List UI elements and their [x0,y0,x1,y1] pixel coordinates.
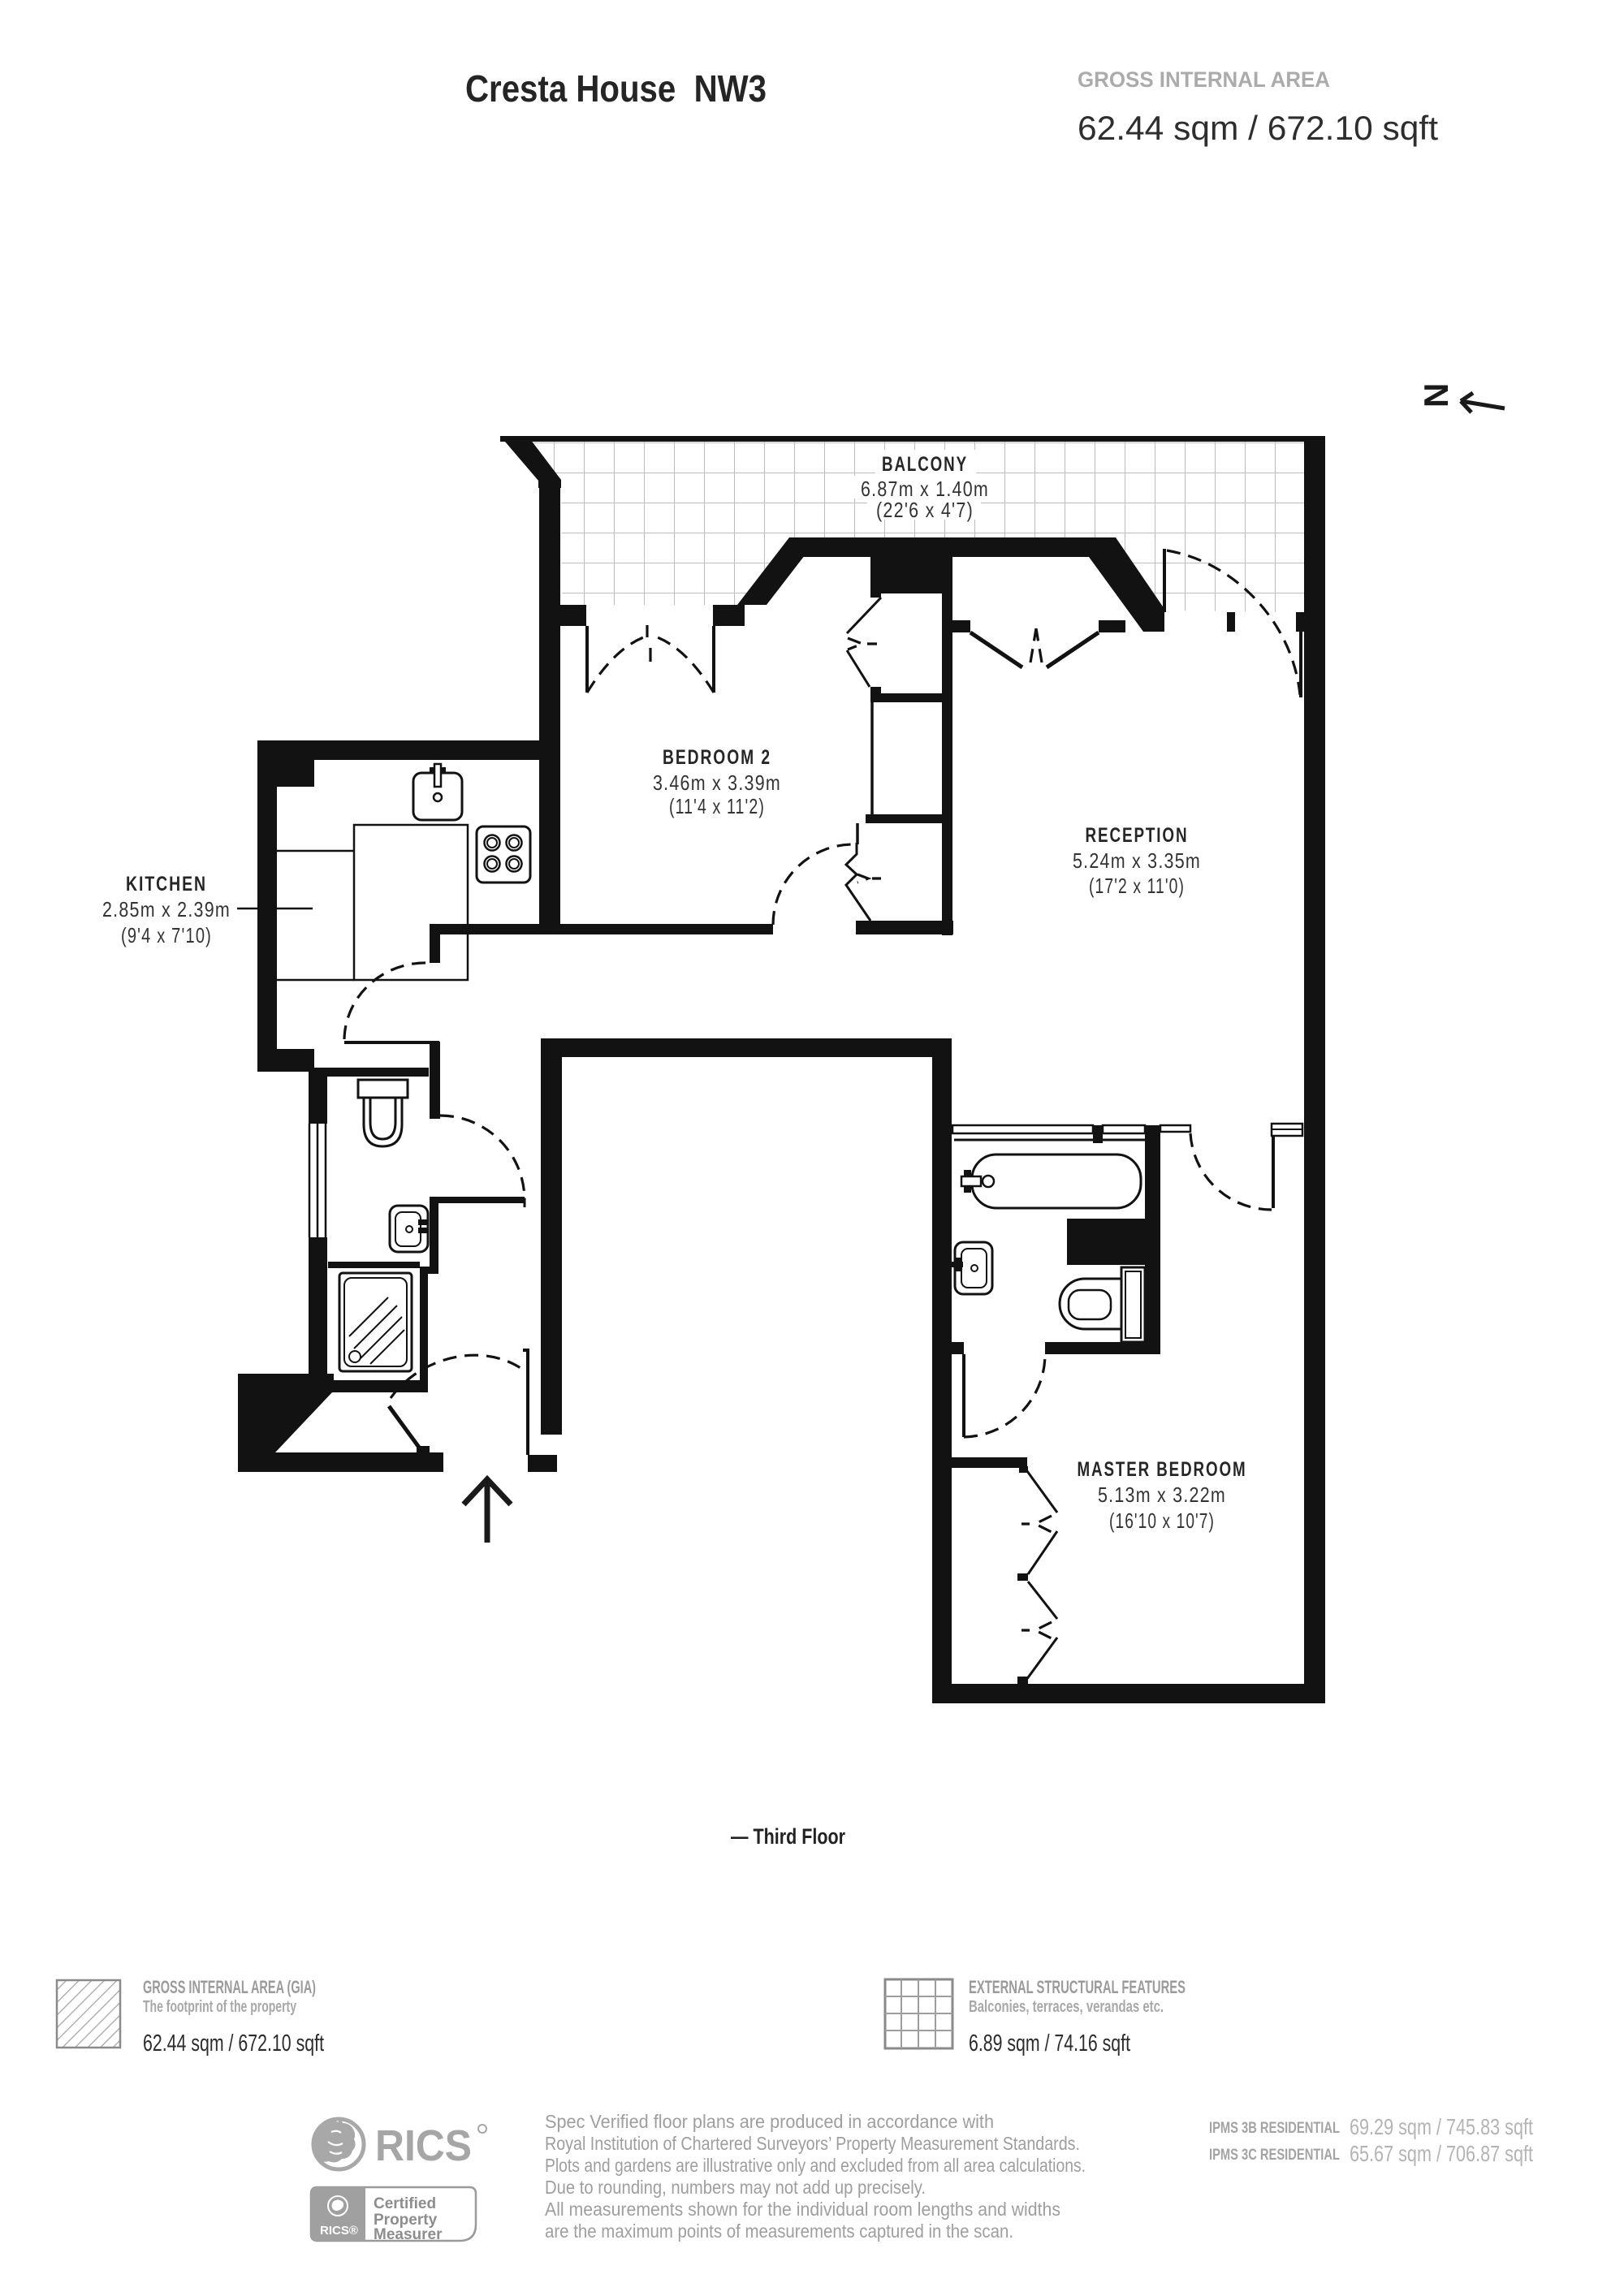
svg-text:6.89 sqm / 74.16 sqft: 6.89 sqm / 74.16 sqft [969,2031,1130,2056]
svg-text:Certified: Certified [374,2195,436,2212]
svg-text:BALCONY: BALCONY [882,453,968,476]
svg-text:GROSS INTERNAL AREA (GIA): GROSS INTERNAL AREA (GIA) [143,1977,316,1997]
svg-text:5.13m x 3.22m: 5.13m x 3.22m [1098,1482,1226,1507]
svg-text:Due to rounding, numbers may n: Due to rounding, numbers may not add up … [545,2177,926,2198]
svg-text:RICS®: RICS® [320,2224,358,2238]
svg-text:(11'4 x 11'2): (11'4 x 11'2) [669,794,765,818]
svg-text:BEDROOM 2: BEDROOM 2 [663,746,771,769]
svg-text:Royal Institution of Chartered: Royal Institution of Chartered Surveyors… [545,2133,1080,2154]
svg-text:are the maximum points of meas: are the maximum points of measurements c… [545,2220,1013,2242]
svg-text:69.29 sqm / 745.83 sqft: 69.29 sqm / 745.83 sqft [1350,2114,1533,2139]
svg-text:Plots and gardens are illustra: Plots and gardens are illustrative only … [545,2155,1086,2176]
svg-text:EXTERNAL STRUCTURAL FEATURES: EXTERNAL STRUCTURAL FEATURES [969,1977,1186,1997]
svg-text:(9'4 x 7'10): (9'4 x 7'10) [121,923,212,947]
svg-text:65.67 sqm / 706.87 sqft: 65.67 sqm / 706.87 sqft [1350,2141,1533,2166]
svg-text:2.85m x 2.39m: 2.85m x 2.39m [102,897,231,921]
svg-text:(22'6 x 4'7): (22'6 x 4'7) [876,498,974,522]
svg-text:(17'2 x 11'0): (17'2 x 11'0) [1089,874,1185,898]
svg-text:All measurements shown for the: All measurements shown for the individua… [545,2199,1060,2220]
svg-text:MASTER BEDROOM: MASTER BEDROOM [1078,1458,1247,1481]
svg-text:RICS: RICS [375,2121,472,2170]
svg-text:5.24m x 3.35m: 5.24m x 3.35m [1073,848,1201,873]
svg-text:N: N [1417,383,1455,408]
svg-text:GROSS INTERNAL AREA: GROSS INTERNAL AREA [1078,67,1330,92]
svg-text:(16'10 x 10'7): (16'10 x 10'7) [1109,1508,1215,1533]
svg-text:IPMS 3C RESIDENTIAL: IPMS 3C RESIDENTIAL [1209,2147,1340,2164]
svg-text:3.46m x 3.39m: 3.46m x 3.39m [653,770,781,795]
svg-text:The footprint of the property: The footprint of the property [143,1998,297,2016]
svg-text:Balconies, terraces, verandas: Balconies, terraces, verandas etc. [969,1998,1164,2016]
svg-text:KITCHEN: KITCHEN [126,873,207,896]
svg-text:Spec Verified floor plans are: Spec Verified floor plans are produced i… [545,2111,994,2132]
svg-text:Cresta House NW3: Cresta House NW3 [465,67,767,110]
svg-text:62.44 sqm / 672.10 sqft: 62.44 sqm / 672.10 sqft [1078,109,1438,147]
svg-text:IPMS 3B RESIDENTIAL: IPMS 3B RESIDENTIAL [1209,2120,1340,2137]
svg-text:RECEPTION: RECEPTION [1086,824,1189,847]
svg-text:— Third Floor: — Third Floor [731,1824,845,1849]
svg-text:Measurer: Measurer [374,2226,443,2243]
svg-text:62.44 sqm / 672.10 sqft: 62.44 sqm / 672.10 sqft [143,2031,324,2056]
